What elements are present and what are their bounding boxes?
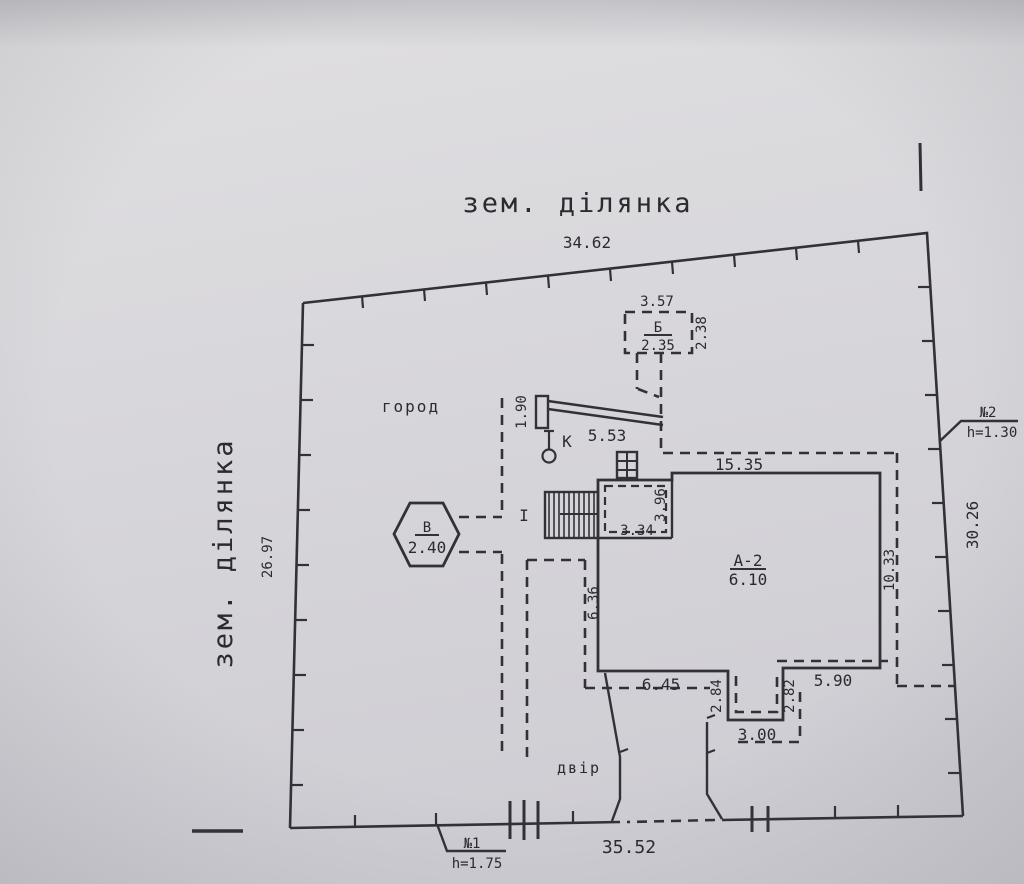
scanned-site-plan: зем. ділянка зем. ділянка 34.62 26.97 30… <box>0 0 1024 884</box>
photo-vignette <box>0 0 1024 884</box>
site-plan-drawing: зем. ділянка зем. ділянка 34.62 26.97 30… <box>0 0 1024 884</box>
